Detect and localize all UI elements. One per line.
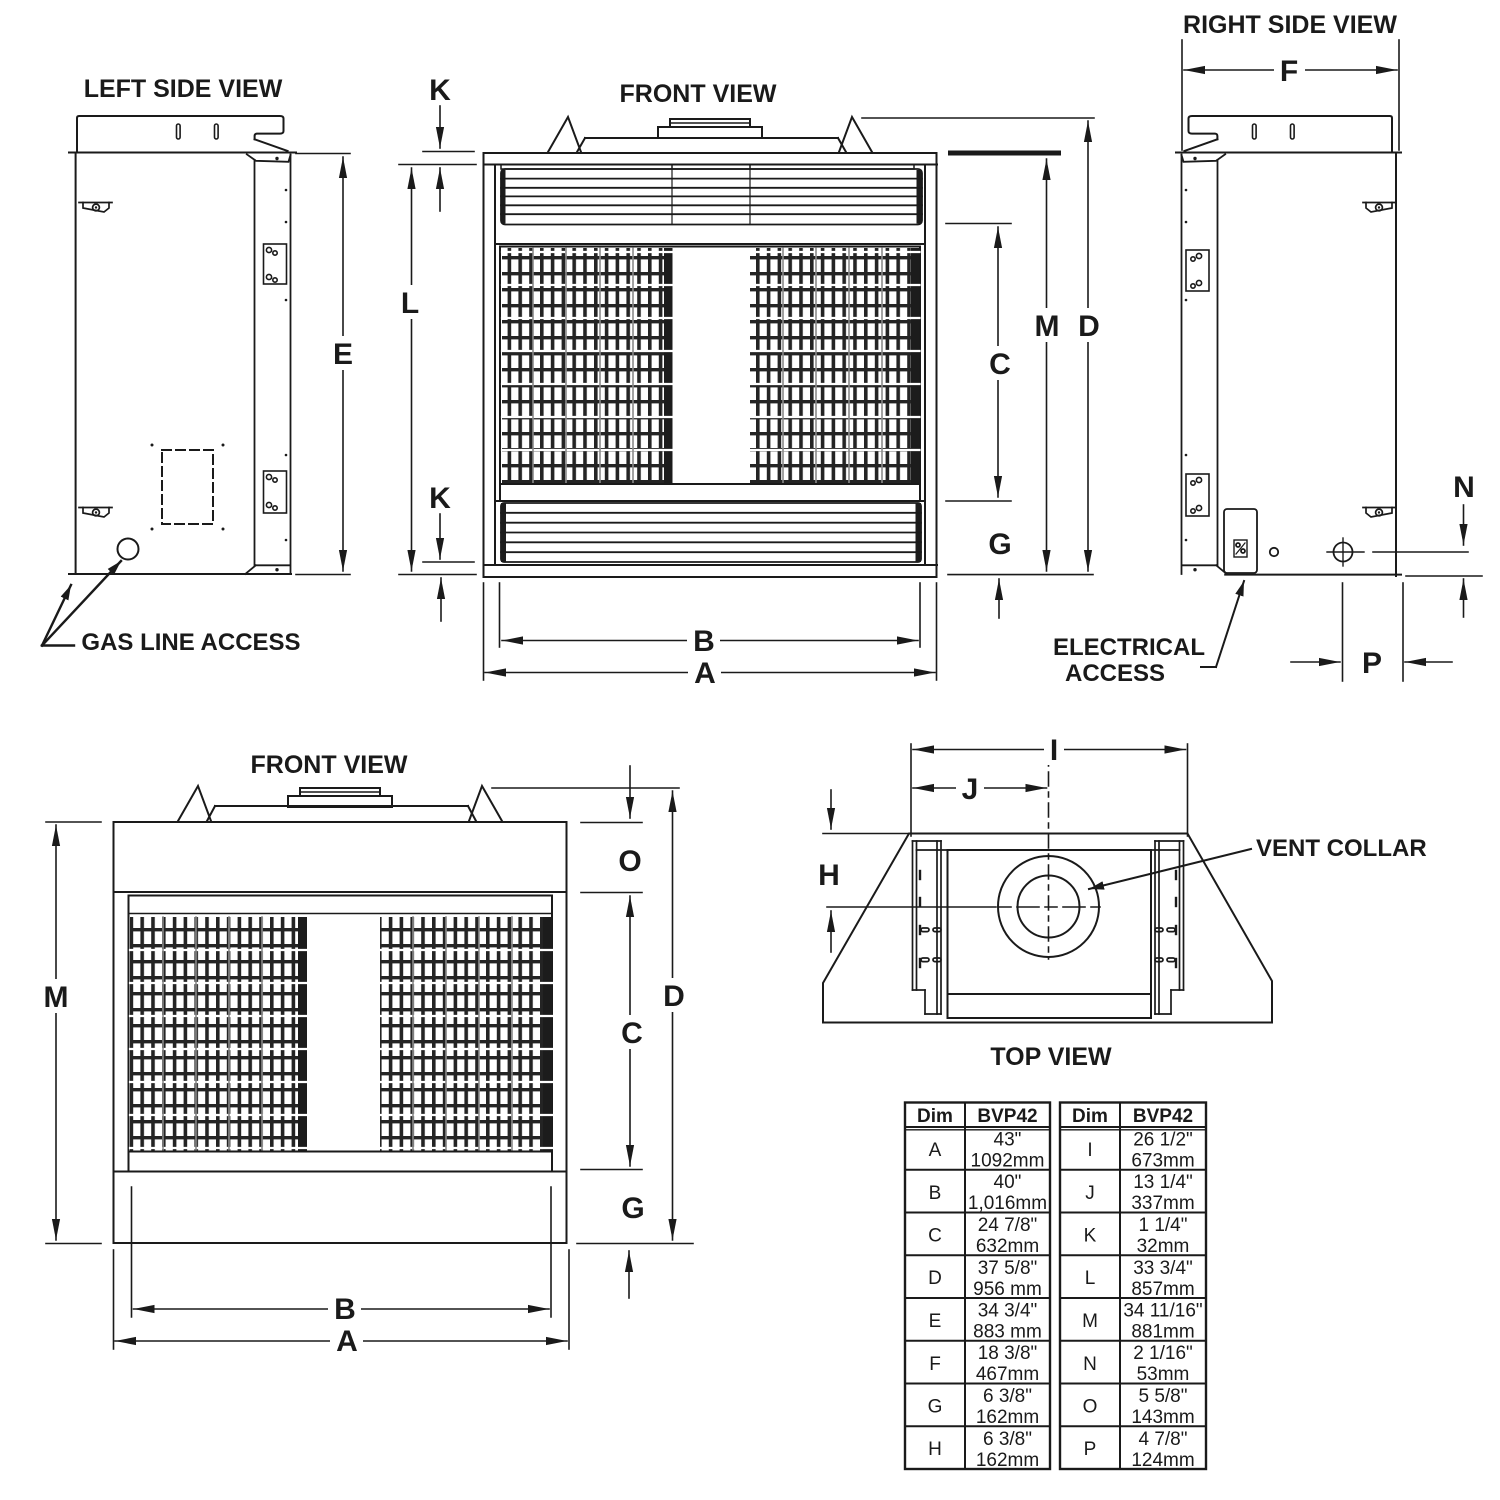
svg-text:Dim: Dim (917, 1106, 953, 1127)
svg-text:G: G (988, 528, 1011, 561)
svg-text:I: I (1087, 1140, 1092, 1161)
svg-text:632mm: 632mm (976, 1236, 1039, 1257)
svg-text:857mm: 857mm (1131, 1279, 1194, 1300)
svg-text:34 3/4": 34 3/4" (978, 1301, 1038, 1322)
svg-text:5 5/8": 5 5/8" (1138, 1386, 1187, 1407)
svg-text:24 7/8": 24 7/8" (978, 1215, 1038, 1236)
svg-text:37 5/8": 37 5/8" (978, 1258, 1038, 1279)
svg-text:881mm: 881mm (1131, 1322, 1194, 1343)
svg-text:L: L (401, 287, 419, 320)
svg-text:H: H (818, 859, 840, 892)
svg-text:6 3/8": 6 3/8" (983, 1386, 1032, 1407)
svg-text:883 mm: 883 mm (973, 1322, 1042, 1343)
svg-text:33 3/4": 33 3/4" (1133, 1258, 1193, 1279)
svg-text:C: C (621, 1017, 643, 1050)
svg-text:M: M (44, 981, 69, 1014)
svg-text:O: O (1083, 1397, 1098, 1418)
svg-text:162mm: 162mm (976, 1450, 1039, 1471)
svg-text:34 11/16": 34 11/16" (1123, 1301, 1202, 1322)
svg-text:G: G (621, 1192, 644, 1225)
svg-text:M: M (1035, 310, 1060, 343)
svg-text:K: K (429, 74, 451, 107)
svg-text:L: L (1085, 1268, 1096, 1289)
svg-text:BVP42: BVP42 (977, 1106, 1037, 1127)
svg-text:ELECTRICAL: ELECTRICAL (1053, 634, 1205, 661)
svg-text:1,016mm: 1,016mm (968, 1193, 1047, 1214)
svg-text:N: N (1083, 1354, 1097, 1375)
svg-text:124mm: 124mm (1131, 1450, 1194, 1471)
svg-text:O: O (618, 845, 641, 878)
svg-text:J: J (962, 773, 979, 806)
svg-text:FRONT VIEW: FRONT VIEW (620, 80, 777, 108)
svg-text:RIGHT SIDE VIEW: RIGHT SIDE VIEW (1183, 11, 1397, 39)
svg-text:F: F (929, 1354, 941, 1375)
svg-text:13 1/4": 13 1/4" (1133, 1172, 1193, 1193)
svg-text:143mm: 143mm (1131, 1407, 1194, 1428)
svg-text:D: D (1078, 310, 1100, 343)
svg-text:K: K (429, 482, 451, 515)
svg-text:40": 40" (994, 1172, 1022, 1193)
svg-text:LEFT SIDE VIEW: LEFT SIDE VIEW (84, 75, 283, 103)
svg-text:673mm: 673mm (1131, 1151, 1194, 1172)
svg-text:4 7/8": 4 7/8" (1138, 1429, 1187, 1450)
svg-text:467mm: 467mm (976, 1364, 1039, 1385)
svg-text:I: I (1050, 734, 1058, 767)
svg-text:956 mm: 956 mm (973, 1279, 1042, 1300)
svg-text:26 1/2": 26 1/2" (1133, 1130, 1193, 1151)
svg-text:C: C (989, 348, 1011, 381)
svg-text:53mm: 53mm (1137, 1364, 1190, 1385)
svg-text:A: A (929, 1140, 942, 1161)
svg-text:N: N (1453, 471, 1475, 504)
svg-text:B: B (334, 1293, 356, 1326)
svg-text:18 3/8": 18 3/8" (978, 1343, 1038, 1364)
svg-text:J: J (1085, 1183, 1095, 1204)
svg-text:Dim: Dim (1072, 1106, 1108, 1127)
svg-text:G: G (928, 1397, 943, 1418)
svg-text:GAS LINE ACCESS: GAS LINE ACCESS (81, 629, 300, 656)
svg-text:D: D (928, 1268, 942, 1289)
svg-text:ACCESS: ACCESS (1065, 660, 1165, 687)
svg-text:E: E (333, 338, 353, 371)
svg-text:F: F (1280, 55, 1298, 88)
svg-text:C: C (928, 1226, 942, 1247)
svg-text:1092mm: 1092mm (971, 1151, 1045, 1172)
svg-text:2 1/16": 2 1/16" (1133, 1343, 1193, 1364)
svg-text:B: B (929, 1183, 942, 1204)
svg-text:BVP42: BVP42 (1133, 1106, 1193, 1127)
svg-text:A: A (336, 1325, 358, 1358)
svg-text:B: B (693, 625, 715, 658)
svg-text:43": 43" (994, 1130, 1022, 1151)
svg-text:1 1/4": 1 1/4" (1138, 1215, 1187, 1236)
svg-text:337mm: 337mm (1131, 1193, 1194, 1214)
svg-text:E: E (929, 1311, 942, 1332)
svg-text:M: M (1082, 1311, 1098, 1332)
svg-text:K: K (1084, 1226, 1097, 1247)
svg-text:D: D (663, 980, 685, 1013)
svg-text:P: P (1362, 647, 1382, 680)
svg-text:162mm: 162mm (976, 1407, 1039, 1428)
svg-text:H: H (928, 1439, 942, 1460)
svg-text:A: A (694, 657, 716, 690)
svg-text:TOP VIEW: TOP VIEW (990, 1043, 1112, 1071)
svg-text:FRONT VIEW: FRONT VIEW (251, 751, 408, 779)
svg-text:32mm: 32mm (1137, 1236, 1190, 1257)
svg-text:6 3/8": 6 3/8" (983, 1429, 1032, 1450)
svg-text:P: P (1084, 1439, 1097, 1460)
svg-text:VENT COLLAR: VENT COLLAR (1256, 835, 1427, 862)
